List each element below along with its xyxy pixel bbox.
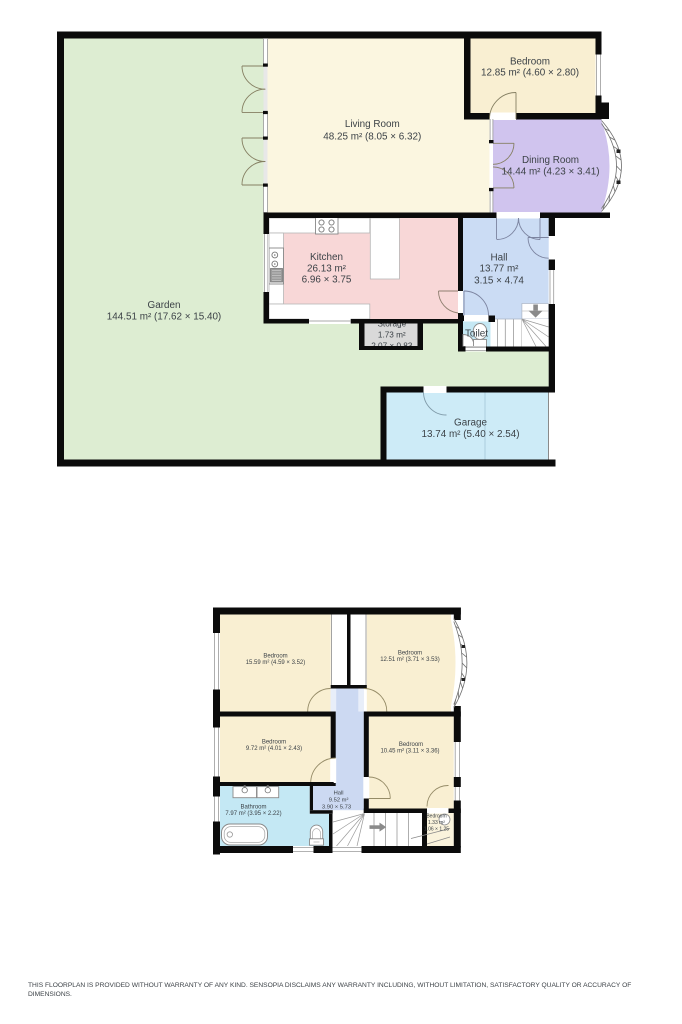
svg-text:7.97 m² (3.95 × 2.22): 7.97 m² (3.95 × 2.22) [225, 811, 281, 817]
svg-text:144.51 m² (17.62 × 15.40): 144.51 m² (17.62 × 15.40) [107, 312, 221, 323]
svg-text:Bathroom: Bathroom [240, 804, 266, 810]
svg-text:48.25 m² (8.05 × 6.32): 48.25 m² (8.05 × 6.32) [323, 132, 421, 143]
svg-text:Bedroom: Bedroom [510, 56, 550, 67]
svg-text:6.96 × 3.75: 6.96 × 3.75 [302, 275, 352, 286]
svg-text:Hall: Hall [334, 790, 344, 796]
svg-text:9.72 m² (4.01 × 2.43): 9.72 m² (4.01 × 2.43) [246, 746, 302, 752]
svg-text:9.52 m²: 9.52 m² [329, 797, 349, 803]
svg-text:12.85 m² (4.60 × 2.80): 12.85 m² (4.60 × 2.80) [481, 68, 579, 79]
svg-text:14.44 m² (4.23 × 3.41): 14.44 m² (4.23 × 3.41) [502, 167, 600, 178]
svg-text:3.90 × 5.73: 3.90 × 5.73 [322, 804, 351, 810]
svg-text:Bedroom: Bedroom [398, 650, 422, 656]
svg-text:13.77 m²: 13.77 m² [480, 264, 520, 275]
svg-text:1.73 m²: 1.73 m² [378, 331, 406, 340]
svg-text:12.51 m² (3.71 × 3.53): 12.51 m² (3.71 × 3.53) [380, 657, 440, 663]
svg-text:Bedroom: Bedroom [263, 654, 287, 660]
svg-text:Bedroom: Bedroom [426, 814, 446, 820]
svg-text:Toilet: Toilet [465, 328, 488, 339]
svg-text:Garden: Garden [148, 300, 181, 311]
svg-text:THIS FLOORPLAN IS PROVIDED WIT: THIS FLOORPLAN IS PROVIDED WITHOUT WARRA… [28, 982, 631, 989]
svg-text:Dining Room: Dining Room [522, 155, 579, 166]
svg-text:13.74 m² (5.40 × 2.54): 13.74 m² (5.40 × 2.54) [422, 429, 520, 440]
svg-text:Bedroom: Bedroom [399, 742, 423, 748]
svg-text:10.45 m² (3.11 × 3.36): 10.45 m² (3.11 × 3.36) [380, 749, 439, 755]
svg-text:Garage: Garage [454, 418, 487, 429]
svg-text:1.33 m²: 1.33 m² [428, 820, 445, 826]
svg-text:15.59 m² (4.59 × 3.52): 15.59 m² (4.59 × 3.52) [246, 660, 306, 666]
svg-text:Bedroom: Bedroom [262, 740, 286, 746]
svg-text:Hall: Hall [490, 252, 507, 263]
svg-text:Kitchen: Kitchen [310, 252, 343, 263]
svg-text:DIMENSIONS.: DIMENSIONS. [28, 991, 72, 998]
svg-text:Living Room: Living Room [345, 119, 400, 130]
svg-text:3.15 × 4.74: 3.15 × 4.74 [474, 276, 524, 287]
svg-text:1.06 × 1.25: 1.06 × 1.25 [424, 827, 449, 833]
svg-text:26.13 m²: 26.13 m² [307, 264, 347, 275]
